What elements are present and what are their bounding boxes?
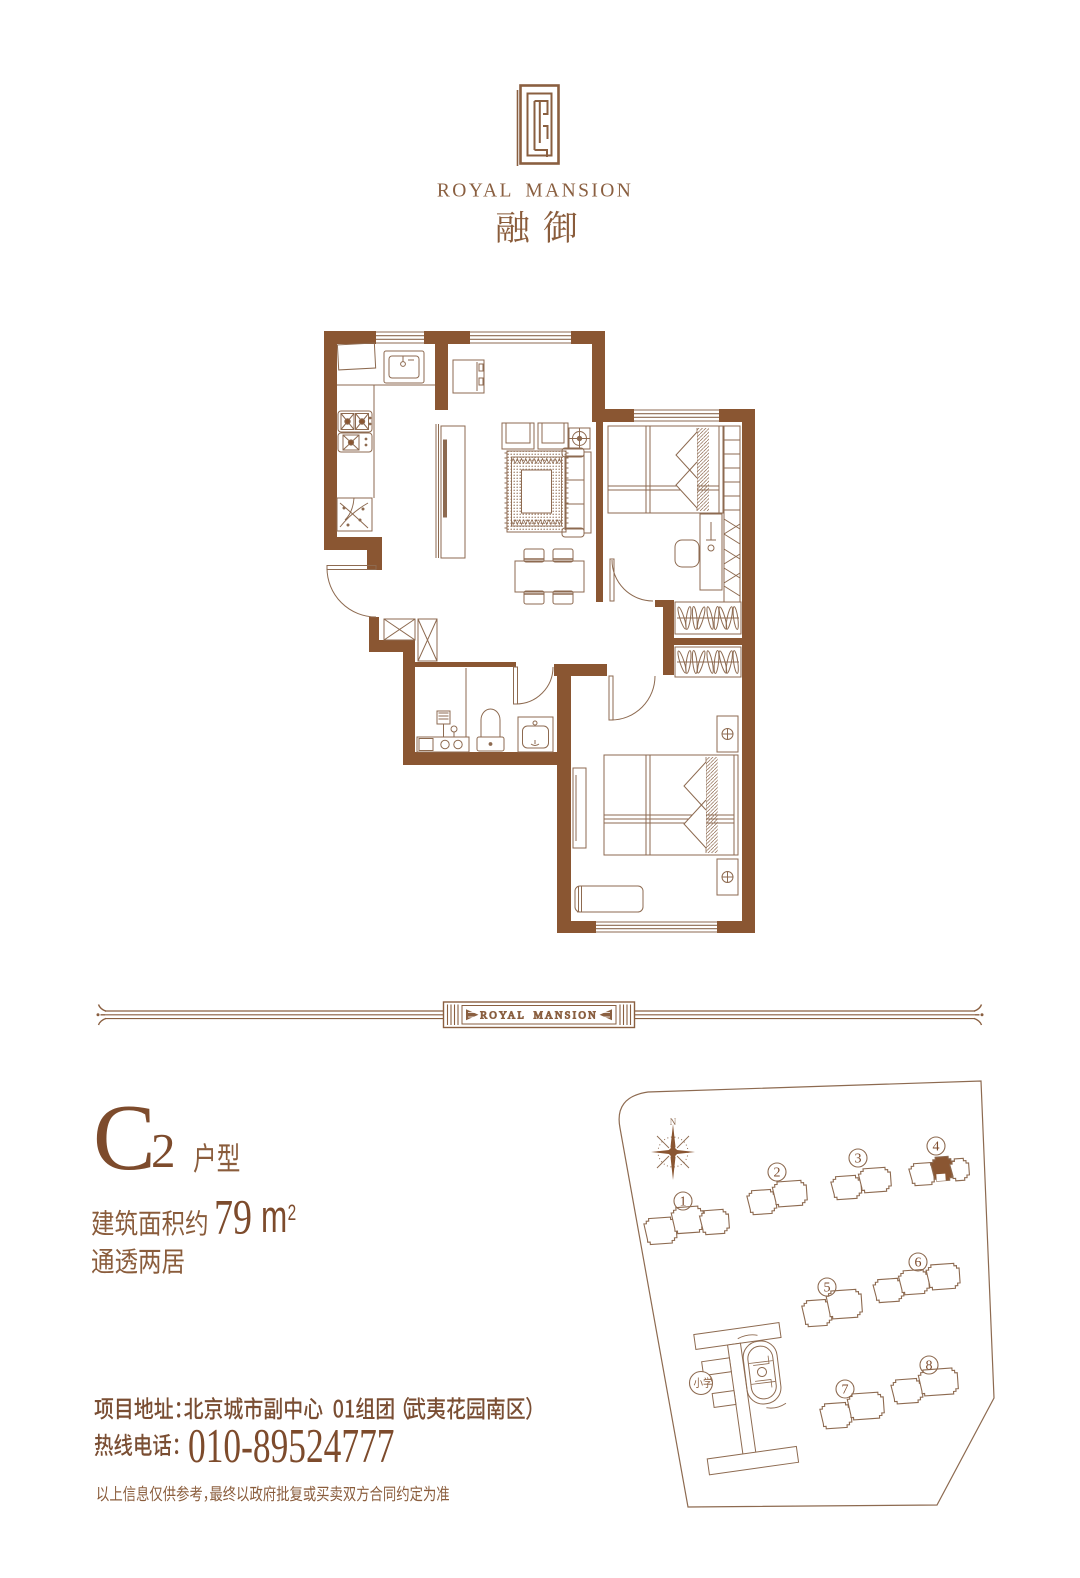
svg-text:4: 4 — [933, 1140, 940, 1155]
svg-text:5: 5 — [824, 1281, 831, 1296]
svg-text:1: 1 — [680, 1195, 687, 1210]
svg-text:ROYAL MANSION: ROYAL MANSION — [480, 1011, 598, 1022]
svg-text:m: m — [261, 1193, 287, 1243]
svg-text:3: 3 — [855, 1152, 862, 1167]
svg-text:010-89524777: 010-89524777 — [188, 1420, 394, 1474]
svg-text:C: C — [93, 1086, 156, 1190]
svg-text:79: 79 — [214, 1188, 252, 1244]
svg-text:2: 2 — [151, 1123, 176, 1178]
svg-text:2: 2 — [288, 1201, 297, 1225]
svg-text:2: 2 — [774, 1166, 781, 1181]
svg-text:N: N — [670, 1117, 677, 1127]
svg-text:ROYAL MANSION: ROYAL MANSION — [437, 181, 633, 202]
svg-text:7: 7 — [842, 1383, 849, 1398]
svg-text:8: 8 — [926, 1359, 933, 1374]
svg-text:6: 6 — [915, 1256, 922, 1271]
